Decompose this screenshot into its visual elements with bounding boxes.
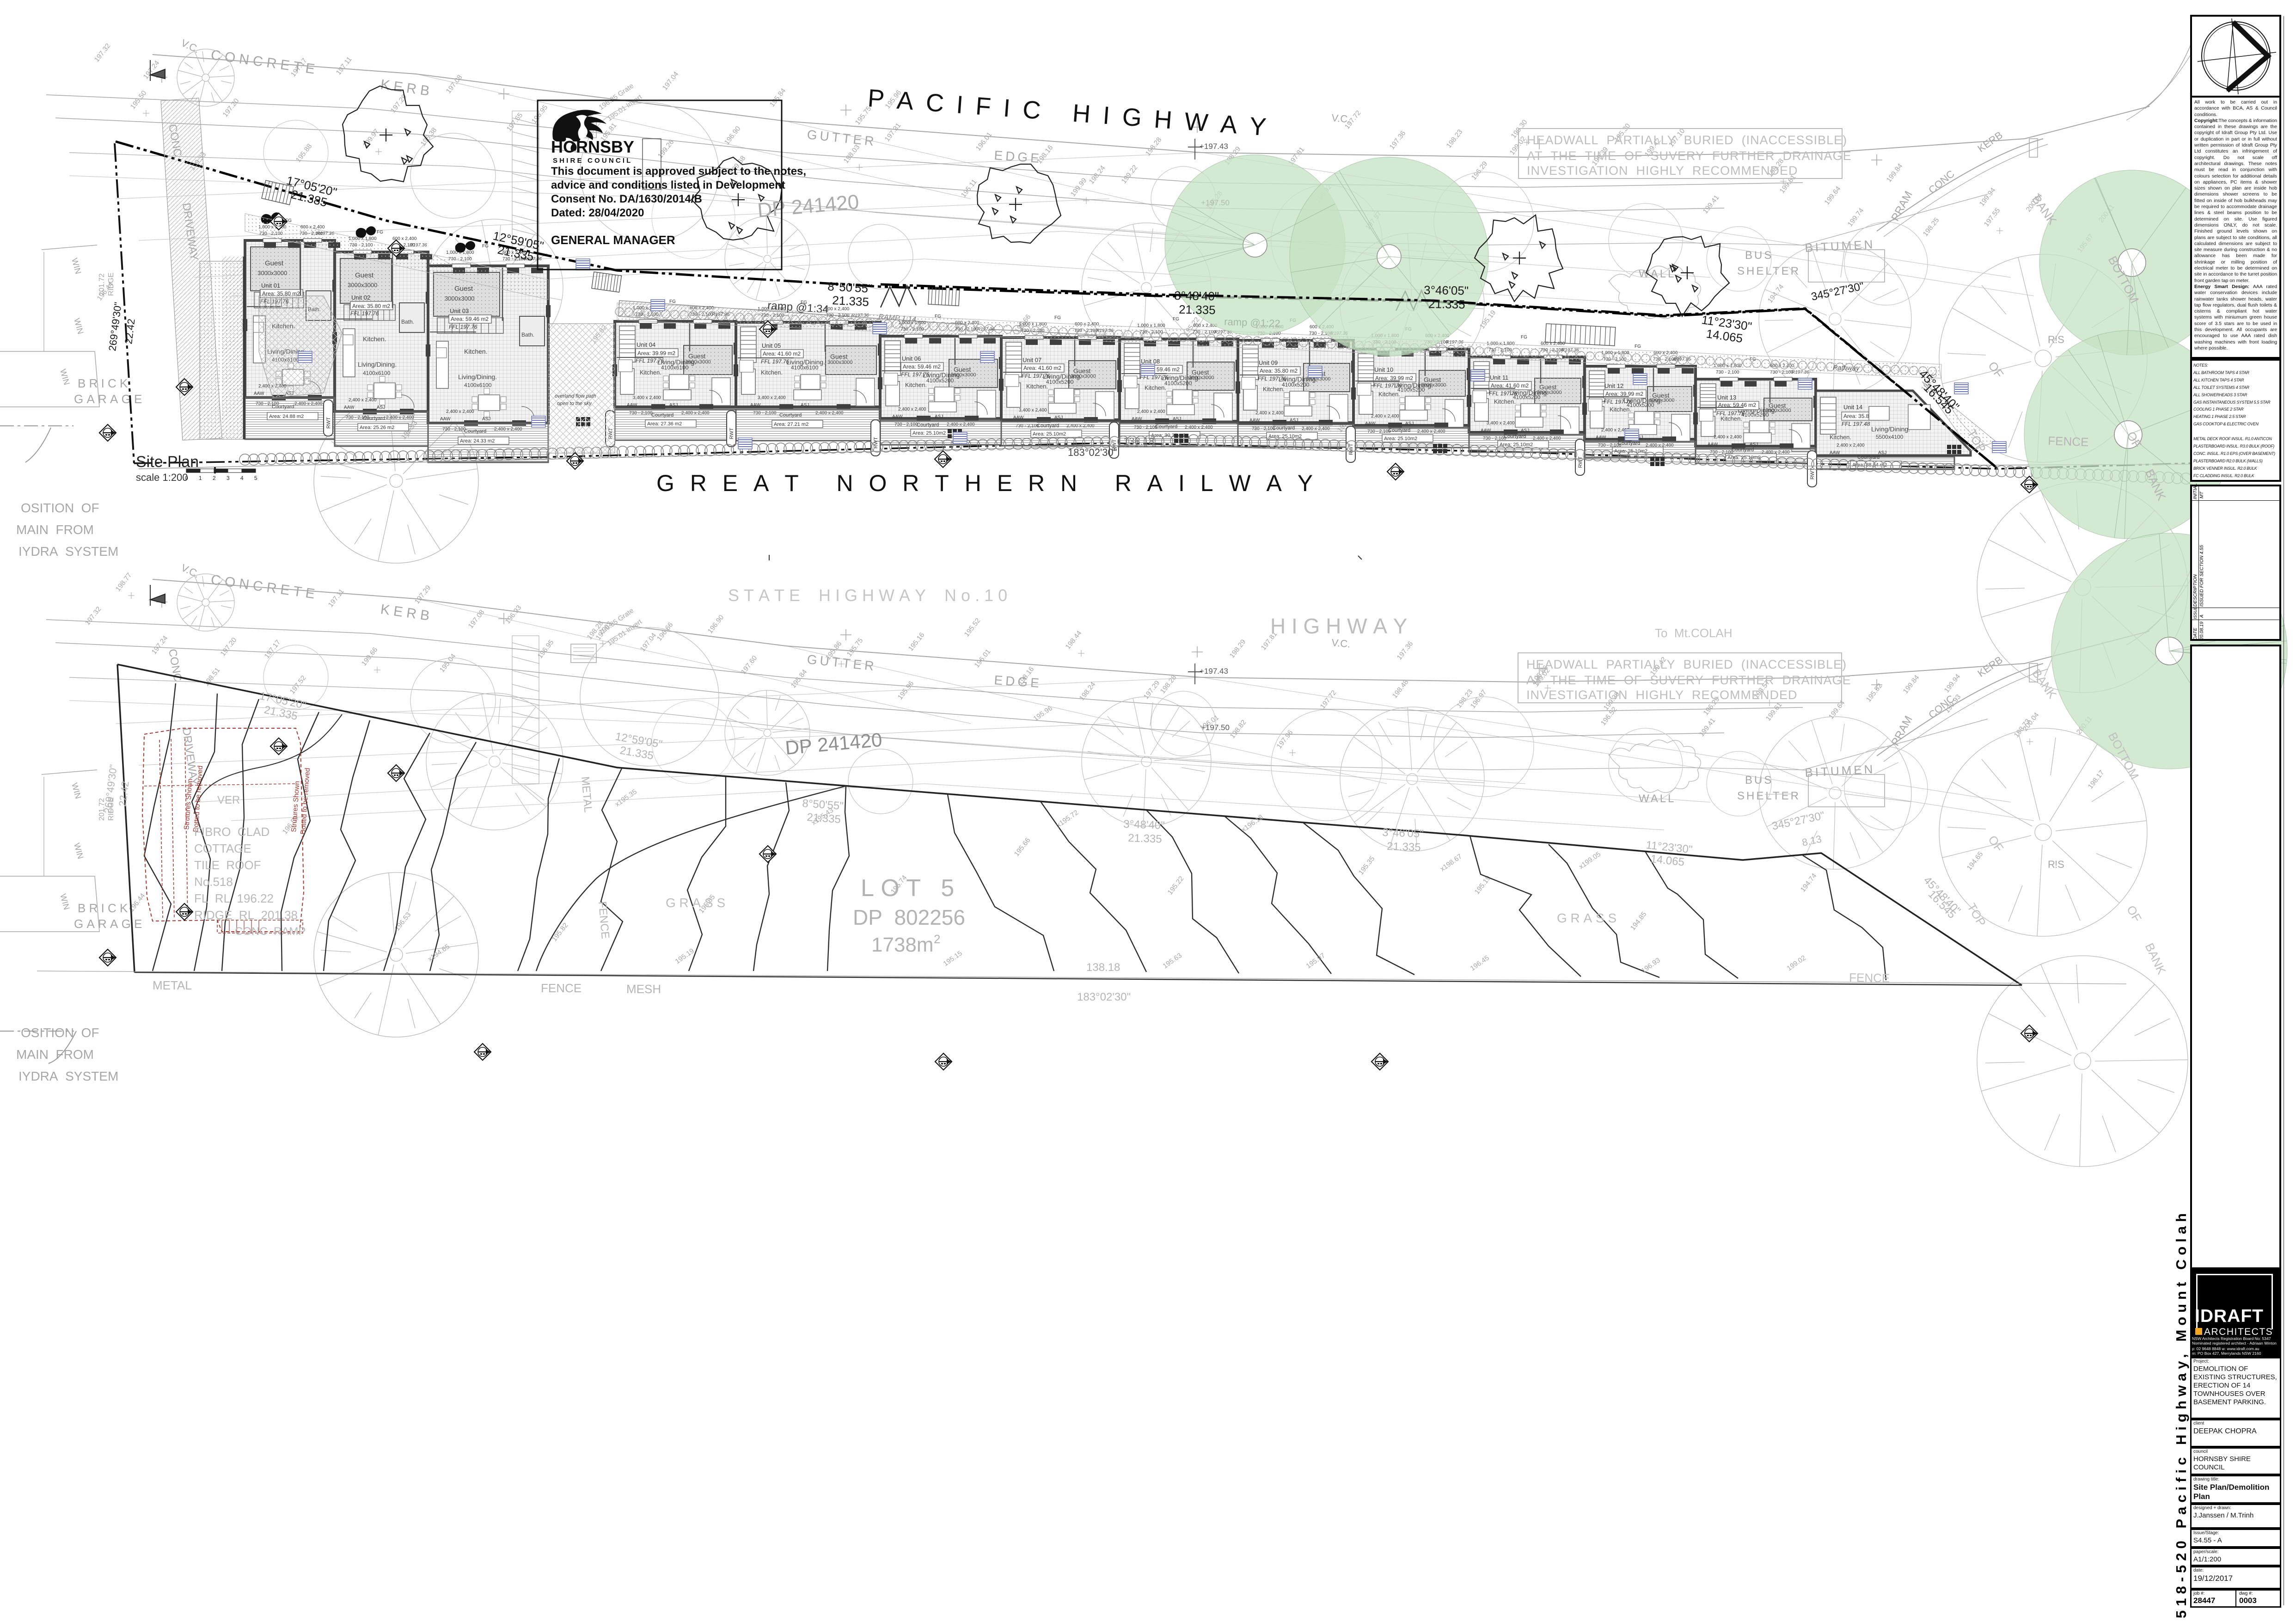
svg-text:AAW: AAW xyxy=(1481,428,1491,433)
svg-text:21.335: 21.335 xyxy=(1387,840,1421,854)
svg-text:G R A S S: G R A S S xyxy=(1557,911,1616,925)
svg-text:198.03: 198.03 xyxy=(842,143,862,165)
svg-text:Kitchen.: Kitchen. xyxy=(1263,386,1285,393)
svg-text:x199.05: x199.05 xyxy=(1578,850,1602,871)
svg-text:4100x6100: 4100x6100 xyxy=(363,370,391,376)
svg-text:199.94: 199.94 xyxy=(1978,186,1997,208)
svg-text:Unit 02: Unit 02 xyxy=(351,294,370,301)
svg-text:AAW: AAW xyxy=(1365,421,1376,426)
svg-text:195.52: 195.52 xyxy=(963,617,982,639)
svg-text:ASJ: ASJ xyxy=(935,414,943,419)
svg-text:Consent No. DA/1630/2014/B: Consent No. DA/1630/2014/B xyxy=(551,193,702,205)
svg-text:4100x5200: 4100x5200 xyxy=(1741,412,1769,418)
svg-text:VER: VER xyxy=(217,794,240,806)
svg-text:4100x6100: 4100x6100 xyxy=(661,364,689,371)
svg-text:197.04: 197.04 xyxy=(639,632,658,653)
svg-text:Bath.: Bath. xyxy=(521,332,534,338)
svg-text:open to the sky: open to the sky xyxy=(557,401,592,406)
svg-text:2,400 x 2,400: 2,400 x 2,400 xyxy=(1255,411,1284,416)
svg-text:x195.72: x195.72 xyxy=(1055,809,1080,829)
svg-text:Guest: Guest xyxy=(265,259,284,267)
svg-text:ASJ: ASJ xyxy=(1878,450,1886,455)
svg-text:3: 3 xyxy=(227,475,230,481)
svg-text:Kitchen.: Kitchen. xyxy=(363,335,386,343)
svg-text:198.82: 198.82 xyxy=(1229,719,1248,740)
svg-text:5: 5 xyxy=(254,475,257,481)
svg-text:196.01: 196.01 xyxy=(973,648,992,670)
svg-text:x196.18: x196.18 xyxy=(1240,813,1265,834)
svg-text:Living/Dining.: Living/Dining. xyxy=(458,373,497,381)
svg-text:ASJ: ASJ xyxy=(377,405,385,410)
svg-text:195.84: 195.84 xyxy=(768,87,788,109)
svg-text:DP 241420: DP 241420 xyxy=(757,190,860,222)
svg-text:Area: 25.10m2: Area: 25.10m2 xyxy=(1384,436,1417,442)
svg-text:197.31: 197.31 xyxy=(883,122,903,143)
svg-text:199.61: 199.61 xyxy=(1764,701,1784,723)
svg-text:FFL 197.76: FFL 197.76 xyxy=(449,324,478,330)
svg-text:Unit 07: Unit 07 xyxy=(1022,356,1041,363)
svg-text:Unit 10: Unit 10 xyxy=(1374,366,1393,373)
svg-text:EDGE: EDGE xyxy=(994,148,1042,166)
svg-text:FENCE: FENCE xyxy=(541,981,582,995)
svg-text:183°02'30": 183°02'30" xyxy=(1068,447,1117,458)
svg-text:FG: FG xyxy=(1173,317,1179,322)
svg-text:FG: FG xyxy=(1521,335,1527,340)
svg-text:199.22: 199.22 xyxy=(1120,164,1139,185)
svg-text:197.72: 197.72 xyxy=(1319,689,1338,711)
svg-text:Kitchen.: Kitchen. xyxy=(905,381,927,388)
svg-text:198.48: 198.48 xyxy=(1391,678,1410,700)
svg-text:+197.43: +197.43 xyxy=(1200,142,1228,151)
svg-text:KERB: KERB xyxy=(1976,129,2005,154)
svg-text:Area: 25.10m2: Area: 25.10m2 xyxy=(1033,431,1066,437)
svg-text:197.55: 197.55 xyxy=(1983,207,2002,228)
svg-text:FFL 197.76: FFL 197.76 xyxy=(1373,382,1402,389)
svg-text:WIN: WIN xyxy=(58,893,71,911)
svg-text:Area: 24.88 m2: Area: 24.88 m2 xyxy=(269,414,304,419)
svg-text:2,400 x 2,400: 2,400 x 2,400 xyxy=(1137,409,1165,414)
svg-text:Area: 35.80 m2: Area: 35.80 m2 xyxy=(352,303,390,309)
svg-text:KERB: KERB xyxy=(1976,654,2005,679)
svg-text:2,400 x 2,400: 2,400 x 2,400 xyxy=(1837,443,1865,448)
svg-text:V.C.: V.C. xyxy=(179,37,202,55)
svg-text:OF: OF xyxy=(2124,903,2144,924)
svg-text:Unit 06: Unit 06 xyxy=(902,355,921,362)
svg-text:195.66: 195.66 xyxy=(1013,836,1032,858)
svg-text:G R E A T N O R T H E R N: G R E A T N O R T H E R N R A I L W A Y xyxy=(656,470,1317,496)
svg-text:195.50: 195.50 xyxy=(129,89,148,111)
svg-text:195.35: 195.35 xyxy=(1357,855,1377,877)
svg-text:197.32: 197.32 xyxy=(93,42,112,64)
svg-text:Guest: Guest xyxy=(454,285,473,293)
svg-text:199.41: 199.41 xyxy=(1702,194,1721,215)
svg-text:3,400 x 2,400: 3,400 x 2,400 xyxy=(758,395,786,400)
svg-text:Dated: 28/04/2020: Dated: 28/04/2020 xyxy=(551,207,644,219)
svg-text:Kitchen.: Kitchen. xyxy=(1830,434,1851,441)
svg-text:4100x6100: 4100x6100 xyxy=(464,382,492,388)
svg-text:183°02'30": 183°02'30" xyxy=(1077,991,1131,1003)
svg-text:AAW: AAW xyxy=(1132,417,1142,422)
svg-text:G A R A G E: G A R A G E xyxy=(74,392,142,406)
svg-text:IYDRA SYSTEM: IYDRA SYSTEM xyxy=(18,1069,118,1083)
svg-text:Area: 59.46 m2: Area: 59.46 m2 xyxy=(451,316,489,322)
svg-text:269°49'30": 269°49'30" xyxy=(102,764,119,814)
svg-text:ASJ: ASJ xyxy=(1173,417,1181,422)
svg-text:MAIN FROM: MAIN FROM xyxy=(16,522,94,537)
svg-text:Area: 25.10m2: Area: 25.10m2 xyxy=(1500,442,1533,448)
svg-text:B-B: B-B xyxy=(273,224,280,228)
svg-text:197.29: 197.29 xyxy=(413,584,433,606)
svg-text:4: 4 xyxy=(240,475,244,481)
svg-text:197.52: 197.52 xyxy=(288,674,308,696)
svg-text:3°46'05": 3°46'05" xyxy=(1382,826,1424,840)
svg-text:x198.67: x198.67 xyxy=(1439,853,1463,873)
svg-text:FFL 197.48: FFL 197.48 xyxy=(1842,421,1870,427)
svg-text:Living/Dining.: Living/Dining. xyxy=(358,361,397,368)
svg-text:AAW: AAW xyxy=(1013,415,1024,420)
svg-text:ASJ: ASJ xyxy=(482,417,490,422)
svg-text:Courtyard: Courtyard xyxy=(272,404,294,410)
svg-text:Area: 41.60 m2: Area: 41.60 m2 xyxy=(1491,382,1529,389)
svg-text:Courtyard: Courtyard xyxy=(917,422,939,428)
svg-text:198.44: 198.44 xyxy=(1064,629,1084,651)
svg-text:FENCE: FENCE xyxy=(596,901,612,939)
svg-text:S T A T E H I G H W A Y: S T A T E H I G H W A Y N o . 1 0 xyxy=(728,586,1007,605)
svg-text:4100x5200: 4100x5200 xyxy=(1164,380,1192,387)
svg-text:197.36: 197.36 xyxy=(1388,129,1408,151)
svg-text:RWT: RWT xyxy=(326,417,331,429)
svg-text:198.25: 198.25 xyxy=(1922,216,1941,238)
svg-text:Area: 41.60 m2: Area: 41.60 m2 xyxy=(1023,365,1061,371)
svg-text:GENERAL MANAGER: GENERAL MANAGER xyxy=(551,233,675,247)
svg-text:Kitchen.: Kitchen. xyxy=(761,369,783,376)
svg-text:B R I C K: B R I C K xyxy=(78,901,128,915)
svg-text:Unit 11: Unit 11 xyxy=(1490,374,1508,381)
svg-text:194.74: 194.74 xyxy=(1766,283,1786,305)
svg-text:199.41: 199.41 xyxy=(1698,717,1717,738)
svg-text:FG: FG xyxy=(669,299,676,304)
svg-text:FFL 197.76: FFL 197.76 xyxy=(1716,410,1745,417)
svg-text:Courtyard: Courtyard xyxy=(651,412,673,418)
svg-text:PRAM: PRAM xyxy=(1889,189,1915,223)
svg-text:3°46'05": 3°46'05" xyxy=(1424,283,1469,298)
svg-text:FENCE: FENCE xyxy=(2048,434,2089,449)
svg-text:196.90: 196.90 xyxy=(706,614,726,635)
svg-text:OF: OF xyxy=(1985,833,2006,854)
svg-text:Living/Dining.: Living/Dining. xyxy=(1871,425,1910,433)
svg-text:8.13: 8.13 xyxy=(1801,833,1823,848)
svg-text:WIN: WIN xyxy=(72,842,85,860)
svg-text:196.95: 196.95 xyxy=(530,104,550,125)
svg-text:ASJ: ASJ xyxy=(669,403,678,408)
svg-text:TILE ROOF: TILE ROOF xyxy=(194,858,261,872)
svg-text:WALL: WALL xyxy=(1639,793,1676,805)
svg-text:Kitchen.: Kitchen. xyxy=(1378,391,1400,398)
svg-text:Courtyard: Courtyard xyxy=(363,416,385,421)
svg-text:22.42: 22.42 xyxy=(116,780,131,807)
svg-text:Area: 27.21 m2: Area: 27.21 m2 xyxy=(774,422,808,427)
svg-text:Courtyard: Courtyard xyxy=(1504,434,1526,439)
svg-text:RWT: RWT xyxy=(1810,468,1815,479)
svg-text:197.60: 197.60 xyxy=(740,654,759,676)
svg-text:196.90: 196.90 xyxy=(723,125,742,147)
svg-text:RWT: RWT xyxy=(1578,456,1583,468)
svg-text:Area: 39.99 m2: Area: 39.99 m2 xyxy=(637,350,675,356)
svg-text:Bath.: Bath. xyxy=(401,319,414,325)
svg-text:3,400 x 2,400: 3,400 x 2,400 xyxy=(1487,421,1515,426)
svg-text:195.63: 195.63 xyxy=(1162,952,1183,970)
svg-text:195.22: 195.22 xyxy=(1166,875,1186,897)
svg-text:3°48'40": 3°48'40" xyxy=(1123,818,1165,832)
svg-text:FFL 197.76: FFL 197.76 xyxy=(761,358,790,365)
svg-text:IYDRA SYSTEM: IYDRA SYSTEM xyxy=(18,544,118,559)
svg-text:AAW: AAW xyxy=(254,391,264,396)
svg-text:Unit 04: Unit 04 xyxy=(637,341,655,348)
svg-text:3000x3000: 3000x3000 xyxy=(257,270,287,276)
svg-text:AAW: AAW xyxy=(1830,450,1840,455)
svg-text:OSITION OF: OSITION OF xyxy=(21,501,99,515)
svg-text:345°27'30": 345°27'30" xyxy=(1810,280,1865,303)
svg-text:FFL 197.76: FFL 197.76 xyxy=(1022,373,1050,379)
svg-text:Area: 59.46 m2: Area: 59.46 m2 xyxy=(903,363,941,370)
svg-text:0: 0 xyxy=(185,475,188,481)
svg-text:x195.35: x195.35 xyxy=(614,788,638,809)
svg-text:3000x3000: 3000x3000 xyxy=(445,295,474,302)
svg-text:Unit 14: Unit 14 xyxy=(1843,404,1862,411)
svg-text:FENCE: FENCE xyxy=(1849,971,1890,985)
svg-text:1,000 x 1,800: 1,000 x 1,800 xyxy=(446,250,474,255)
svg-text:COTTAGE: COTTAGE xyxy=(194,842,251,855)
svg-text:Kitchen.: Kitchen. xyxy=(1145,384,1166,391)
svg-text:FFL 197.76: FFL 197.76 xyxy=(636,357,664,364)
svg-text:MAIN FROM: MAIN FROM xyxy=(16,1047,94,1062)
svg-text:WIN: WIN xyxy=(72,317,85,335)
svg-text:197.29: 197.29 xyxy=(1142,679,1162,701)
svg-text:21.335: 21.335 xyxy=(1179,302,1216,317)
svg-text:Courtyard: Courtyard xyxy=(1388,428,1410,433)
svg-text:GUTTER: GUTTER xyxy=(806,652,877,674)
svg-text:Area: 25.10m2: Area: 25.10m2 xyxy=(912,430,946,436)
svg-text:195.96: 195.96 xyxy=(1032,704,1054,723)
svg-text:Guest: Guest xyxy=(355,271,374,279)
svg-text:199.97: 199.97 xyxy=(361,128,381,149)
svg-text:Courtyard: Courtyard xyxy=(1273,425,1295,431)
svg-text:3,400 x 2,400: 3,400 x 2,400 xyxy=(633,395,661,400)
svg-text:H I G H W A Y: H I G H W A Y xyxy=(1270,614,1407,638)
svg-text:FFL 197.76: FFL 197.76 xyxy=(350,310,379,317)
svg-text:1: 1 xyxy=(199,475,202,481)
svg-text:199.94: 199.94 xyxy=(1943,673,1962,694)
svg-text:199.02: 199.02 xyxy=(1786,954,1807,972)
svg-text:2: 2 xyxy=(934,932,940,946)
svg-text:195.15: 195.15 xyxy=(942,949,964,968)
svg-text:1738m: 1738m xyxy=(871,934,934,956)
svg-text:Unit 09: Unit 09 xyxy=(1259,359,1278,366)
svg-text:Unit 01: Unit 01 xyxy=(261,282,280,289)
svg-text:CONC RAMP: CONC RAMP xyxy=(235,925,306,938)
svg-text:194.65: 194.65 xyxy=(1965,850,1985,872)
svg-text:AAW: AAW xyxy=(1249,418,1260,423)
svg-text:DP 802256: DP 802256 xyxy=(853,905,965,929)
svg-text:INVESTIGATION HIGHLY RECOMME: INVESTIGATION HIGHLY RECOMMENDED xyxy=(1527,164,1798,178)
svg-text:FG: FG xyxy=(377,230,383,235)
svg-text:FFL 197.76: FFL 197.76 xyxy=(1489,390,1518,397)
svg-text:196.93: 196.93 xyxy=(1640,956,1662,975)
svg-text:21.335: 21.335 xyxy=(1128,832,1162,846)
svg-text:198.29: 198.29 xyxy=(1228,638,1248,660)
svg-text:Unit 08: Unit 08 xyxy=(1141,358,1160,365)
svg-text:197.08: 197.08 xyxy=(467,608,486,630)
svg-text:195.75: 195.75 xyxy=(845,637,865,658)
svg-text:WIN: WIN xyxy=(70,782,83,800)
svg-text:WALL: WALL xyxy=(1639,268,1676,280)
svg-text:196.01: 196.01 xyxy=(974,131,994,153)
svg-text:2: 2 xyxy=(213,475,216,481)
svg-text:HORNSBY: HORNSBY xyxy=(551,137,634,156)
svg-text:Kitchen.: Kitchen. xyxy=(1026,383,1048,390)
svg-text:197.11: 197.11 xyxy=(335,55,354,77)
svg-text:2,400 x 2,400: 2,400 x 2,400 xyxy=(349,398,377,403)
svg-text:Area: 41.60 m2: Area: 41.60 m2 xyxy=(763,350,801,357)
svg-text:199.99: 199.99 xyxy=(1069,177,1089,198)
svg-text:FIBRO CLAD: FIBRO CLAD xyxy=(194,825,269,839)
svg-text:BITUMEN: BITUMEN xyxy=(1805,237,1875,255)
svg-text:199.30: 199.30 xyxy=(1510,118,1529,140)
svg-text:Guest: Guest xyxy=(830,353,847,360)
svg-text:RWT: RWT xyxy=(1348,443,1354,455)
svg-text:AAW: AAW xyxy=(892,414,903,419)
svg-text:MESH: MESH xyxy=(626,982,661,996)
svg-text:194.74: 194.74 xyxy=(1799,872,1818,894)
svg-text:AAW: AAW xyxy=(627,403,637,408)
svg-text:BUS: BUS xyxy=(1745,249,1773,262)
svg-text:FG: FG xyxy=(482,244,489,249)
svg-text:FG: FG xyxy=(1054,315,1061,320)
svg-text:ASJ: ASJ xyxy=(1054,415,1063,420)
svg-text:269°49'30": 269°49'30" xyxy=(106,301,124,352)
svg-text:Courtyard: Courtyard xyxy=(779,412,802,418)
svg-text:197.04: 197.04 xyxy=(661,70,680,92)
svg-text:ASJ: ASJ xyxy=(1521,428,1529,433)
svg-text:Unit 13: Unit 13 xyxy=(1717,394,1736,401)
svg-text:HEADWALL PARTIALLY BURIED (: HEADWALL PARTIALLY BURIED (INACCESSIBLE) xyxy=(1526,657,1847,671)
svg-text:Courtyard: Courtyard xyxy=(1155,424,1177,430)
svg-text:196.29: 196.29 xyxy=(1470,160,1489,182)
svg-text:197.65: 197.65 xyxy=(505,111,525,133)
svg-text:L O T 5: L O T 5 xyxy=(861,875,954,902)
svg-text:600 x 2,400: 600 x 2,400 xyxy=(1541,341,1565,346)
svg-text:Area: 39.99 m2: Area: 39.99 m2 xyxy=(1605,391,1643,397)
svg-text:AAW: AAW xyxy=(1596,435,1606,440)
svg-text:Area: 35.80 m2: Area: 35.80 m2 xyxy=(1260,368,1298,374)
svg-text:Kitchen.: Kitchen. xyxy=(464,348,488,355)
svg-text:RWT: RWT xyxy=(729,428,735,439)
svg-text:195.16: 195.16 xyxy=(907,631,926,653)
svg-text:199.02: 199.02 xyxy=(1508,135,1528,157)
svg-text:overland flow path: overland flow path xyxy=(555,393,596,399)
svg-text:195.52: 195.52 xyxy=(1865,682,1884,704)
svg-text:Area: 25.26 m2: Area: 25.26 m2 xyxy=(360,425,394,430)
svg-text:197.20: 197.20 xyxy=(221,97,241,119)
svg-text:195.97: 195.97 xyxy=(1305,952,1327,970)
svg-text:G R A S S: G R A S S xyxy=(666,896,725,910)
svg-text:RIDGE RL 201.38: RIDGE RL 201.38 xyxy=(194,908,298,922)
svg-text:No.518: No.518 xyxy=(194,875,233,889)
svg-text:197.20: 197.20 xyxy=(219,636,239,658)
svg-text:ASJ: ASJ xyxy=(801,403,809,408)
svg-text:138.18: 138.18 xyxy=(1086,961,1120,974)
svg-text:198.17: 198.17 xyxy=(2087,769,2106,791)
svg-text:OF: OF xyxy=(1985,359,2006,381)
svg-text:3,400 x 2,400: 3,400 x 2,400 xyxy=(1019,408,1047,413)
svg-text:Courtyard: Courtyard xyxy=(1037,423,1059,429)
svg-text:Site Plan: Site Plan xyxy=(136,453,199,471)
svg-text:FL RL 196.22: FL RL 196.22 xyxy=(194,891,274,905)
svg-text:BANK: BANK xyxy=(2143,941,2169,977)
svg-text:R197.36: R197.36 xyxy=(410,243,427,248)
svg-text:2,400 x 2,400: 2,400 x 2,400 xyxy=(1714,435,1742,440)
svg-text:AAW: AAW xyxy=(1708,442,1718,447)
svg-text:AAW: AAW xyxy=(750,403,761,408)
svg-text:OSITION OF: OSITION OF xyxy=(21,1026,99,1040)
svg-text:198.77: 198.77 xyxy=(114,571,134,593)
svg-text:WIN: WIN xyxy=(70,257,83,275)
svg-text:!S: !S xyxy=(2055,859,2064,870)
svg-text:Unit 12: Unit 12 xyxy=(1604,382,1623,389)
svg-text:C O N C R E T E: C O N C R E T E xyxy=(210,572,316,602)
svg-text:197.17: 197.17 xyxy=(263,639,282,660)
svg-text:195.11: 195.11 xyxy=(960,178,979,199)
svg-text:4100x6100: 4100x6100 xyxy=(791,364,819,371)
svg-text:198.28: 198.28 xyxy=(1159,674,1178,695)
svg-text:198.23: 198.23 xyxy=(1445,128,1464,150)
svg-text:FG: FG xyxy=(801,300,807,305)
svg-text:x194.65: x194.65 xyxy=(427,943,451,964)
svg-text:197.96: 197.96 xyxy=(1275,729,1295,750)
svg-text:199.64: 199.64 xyxy=(1823,185,1843,207)
svg-text:B R I C K: B R I C K xyxy=(78,376,128,390)
svg-text:METAL: METAL xyxy=(153,978,192,992)
svg-text:K E R B: K E R B xyxy=(380,602,430,624)
svg-text:GUTTER: GUTTER xyxy=(806,127,877,149)
svg-text:+197.43: +197.43 xyxy=(1200,667,1228,676)
svg-text:Kitchen.: Kitchen. xyxy=(640,369,661,376)
svg-text:Area: 39.99 m2: Area: 39.99 m2 xyxy=(1375,375,1413,381)
svg-text:Kitchen.: Kitchen. xyxy=(1494,398,1516,405)
svg-text:730 - 2,100: 730 - 2,100 xyxy=(1716,370,1739,375)
svg-text:194.85: 194.85 xyxy=(1629,910,1648,932)
svg-text:2,400 x 2,400: 2,400 x 2,400 xyxy=(1371,414,1399,419)
svg-text:FFL 197.76: FFL 197.76 xyxy=(1604,399,1632,405)
svg-text:195.82: 195.82 xyxy=(551,922,570,943)
svg-text:4100x5200: 4100x5200 xyxy=(1282,381,1310,388)
svg-text:ASJ: ASJ xyxy=(1750,442,1758,447)
svg-text:199.26: 199.26 xyxy=(656,138,676,160)
svg-text:scale 1:200: scale 1:200 xyxy=(136,472,188,483)
svg-text:22.42: 22.42 xyxy=(122,318,137,345)
svg-text:V.C.: V.C. xyxy=(179,562,202,580)
svg-text:Courtyard: Courtyard xyxy=(1732,447,1754,453)
svg-text:ASJ: ASJ xyxy=(1405,421,1414,426)
svg-text:Unit 05: Unit 05 xyxy=(762,342,781,349)
svg-text:BANK: BANK xyxy=(2029,192,2060,227)
svg-text:FFL 197.76: FFL 197.76 xyxy=(1258,375,1286,382)
svg-text:199.84: 199.84 xyxy=(1902,674,1921,695)
svg-text:Courtyard: Courtyard xyxy=(464,429,486,434)
svg-text:AT THE TIME OF SUVERY FUR: AT THE TIME OF SUVERY FURTHER DRAINAGE xyxy=(1527,149,1852,163)
svg-text:BITUMEN: BITUMEN xyxy=(1805,762,1875,780)
svg-text:FG: FG xyxy=(1635,344,1641,349)
